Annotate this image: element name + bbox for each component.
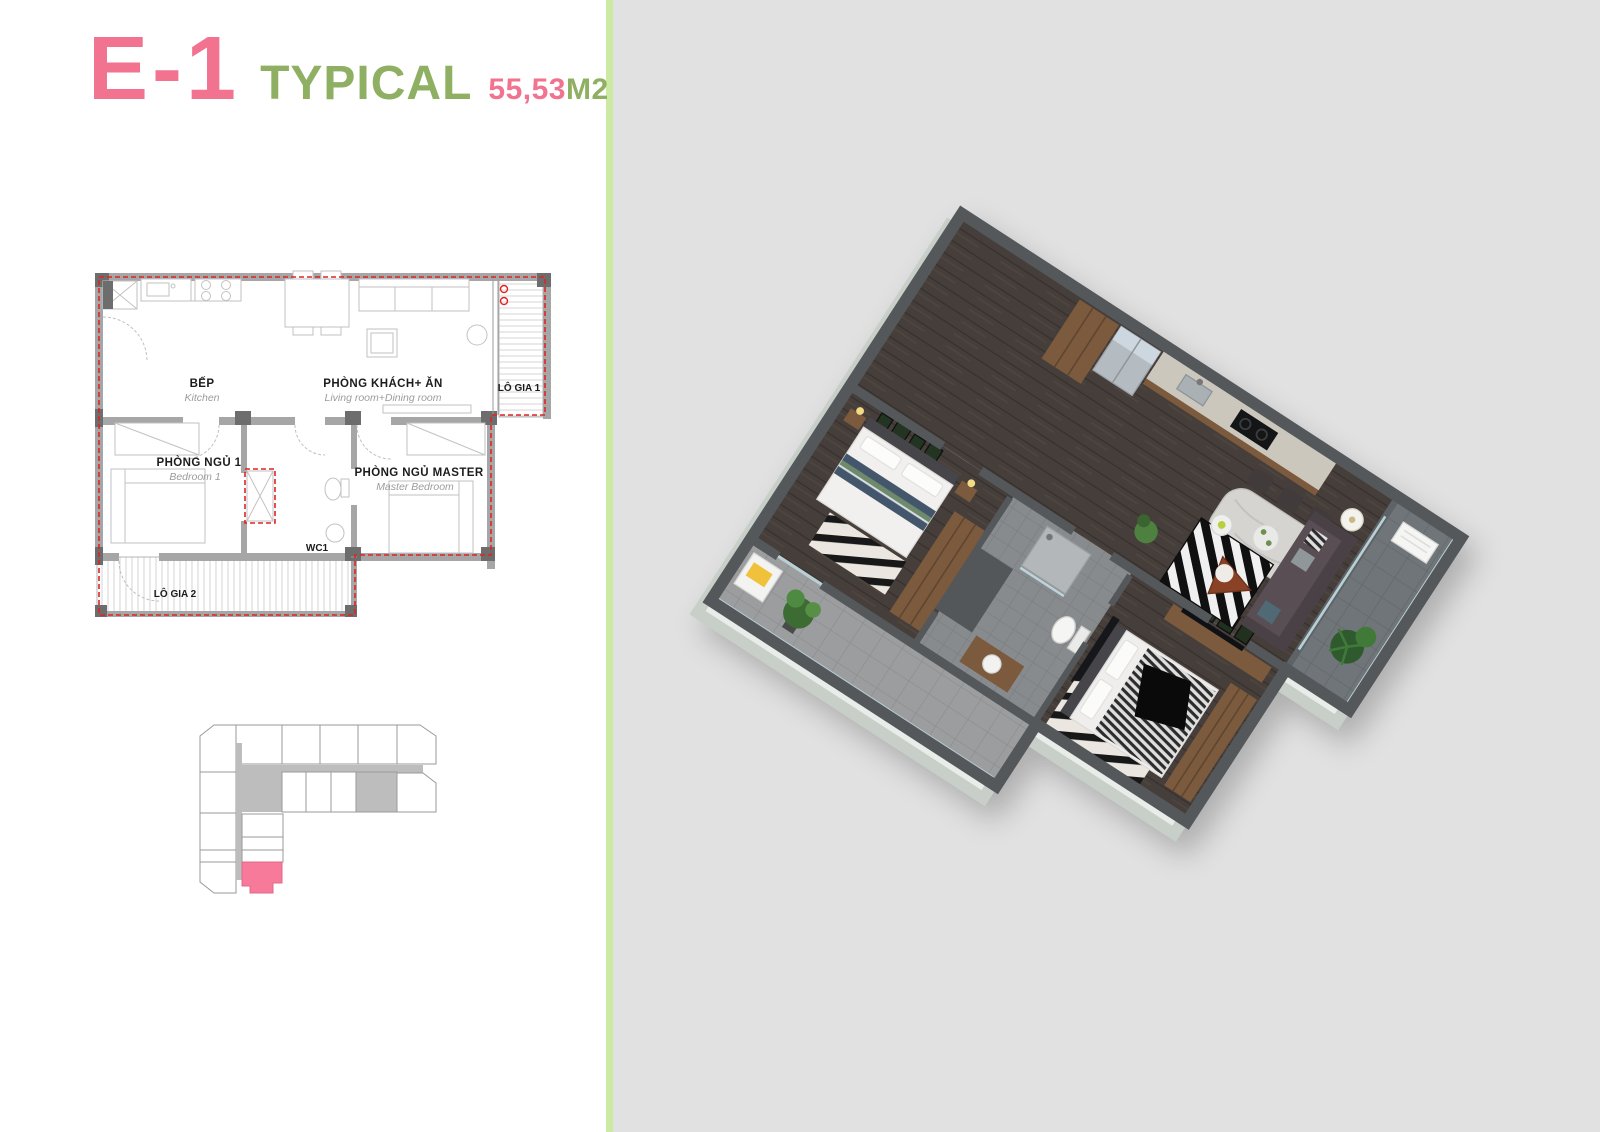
page: E-1 TYPICAL 55,53M2: [0, 0, 1600, 1132]
unit-code: E-1: [88, 24, 240, 114]
area-label: 55,53M2: [488, 73, 608, 107]
type-label: TYPICAL: [260, 56, 472, 111]
page-title: E-1 TYPICAL 55,53M2: [88, 24, 609, 114]
render-3d: [613, 0, 1600, 1132]
keyplan: [170, 690, 490, 910]
label-balcony2: LÔ GIA 2: [154, 587, 197, 600]
label-bedroom1-vi: PHÒNG NGỦ 1: [157, 456, 242, 469]
label-wc: WC1: [306, 543, 329, 554]
label-kitchen-en: Kitchen: [184, 392, 219, 404]
label-balcony1: LÔ GIA 1: [498, 381, 541, 394]
panel-divider: [606, 0, 613, 1132]
label-living-vi: PHÒNG KHÁCH+ ĂN: [323, 377, 442, 390]
area-value: 55,53: [488, 73, 566, 106]
left-panel: E-1 TYPICAL 55,53M2: [0, 0, 606, 1132]
plan-balcony2-floor: [97, 557, 353, 615]
label-kitchen-vi: BẾP: [190, 377, 215, 390]
label-living-en: Living room+Dining room: [324, 392, 441, 404]
label-master-en: Master Bedroom: [376, 481, 454, 493]
render-panel: [613, 0, 1600, 1132]
plan-furniture: [103, 271, 487, 553]
floorplan-2d: BẾP Kitchen PHÒNG KHÁCH+ ĂN Living room+…: [80, 252, 560, 632]
label-bedroom1-en: Bedroom 1: [169, 471, 220, 483]
keyplan-highlight-unit: [242, 862, 282, 893]
label-master-vi: PHÒNG NGỦ MASTER: [354, 466, 483, 479]
keyplan-building: [200, 725, 436, 893]
area-unit: M2: [566, 73, 609, 106]
render-unit: [711, 214, 1462, 925]
